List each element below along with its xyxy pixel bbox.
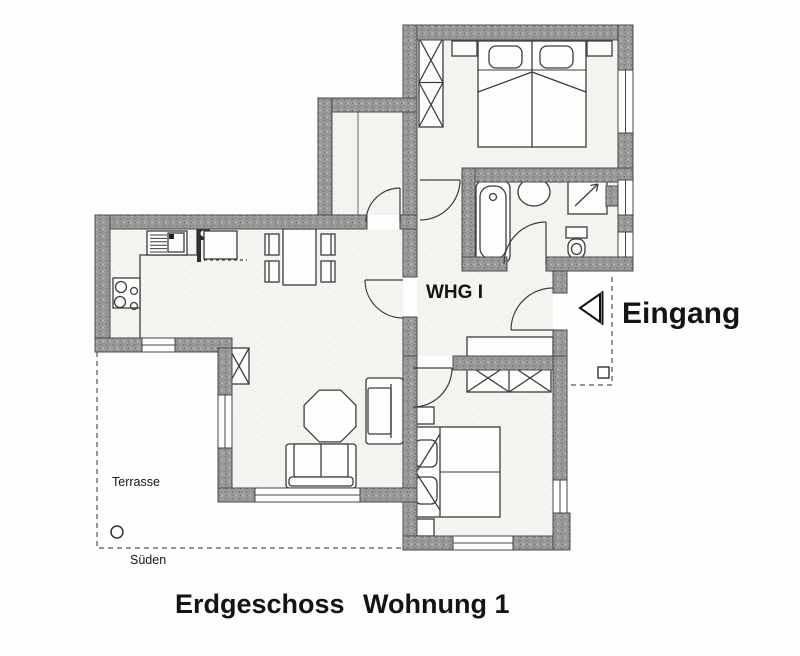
unit-label: WHG I (426, 282, 483, 303)
title-apartment: Wohnung 1 (363, 589, 509, 619)
coffee-table (304, 390, 356, 442)
south-label: Süden (130, 553, 166, 567)
dining-chair (321, 261, 335, 282)
dining-chair (321, 234, 335, 255)
walkway-post (598, 367, 609, 378)
shower (568, 177, 607, 214)
kitchen-sink-unit (147, 231, 187, 255)
bathtub (476, 181, 510, 263)
armchair (366, 378, 403, 444)
window-bathroom-lower (618, 232, 633, 257)
nightstand (416, 407, 434, 424)
hallway-cabinet (467, 337, 553, 357)
kitchen-stove (113, 278, 140, 310)
sofa (286, 444, 356, 488)
bathroom-duct (606, 186, 619, 206)
room-living-kitchen (110, 229, 403, 488)
floor-plan-scan: WHG I Eingang Terrasse Süden Erdgeschoss… (0, 0, 800, 656)
terrace-marker-circle (111, 526, 123, 538)
title-floor: Erdgeschoss (175, 589, 345, 619)
window-living-south (255, 488, 360, 502)
double-bed-1 (478, 41, 586, 147)
terrace-label: Terrasse (112, 475, 160, 489)
nightstand (452, 41, 477, 56)
nightstand (416, 519, 434, 536)
entrance-arrow-icon (580, 291, 603, 325)
entrance-label: Eingang (622, 297, 740, 330)
double-bed-2 (412, 427, 500, 517)
wardrobe-bedroom-1 (419, 38, 443, 127)
room-storage (332, 112, 403, 215)
window-bedroom-2-south (453, 536, 513, 550)
floor-plan: WHG I Eingang Terrasse Süden Erdgeschoss… (0, 0, 800, 656)
window-bedroom-1-east (618, 70, 633, 133)
dining-chair (265, 261, 279, 282)
nightstand (587, 41, 612, 56)
dining-chair (265, 234, 279, 255)
window-living-west (218, 395, 232, 448)
window-bedroom-2-east (553, 480, 567, 513)
window-kitchen (142, 338, 175, 352)
dining-table (283, 229, 316, 285)
window-bathroom-upper (618, 180, 633, 215)
